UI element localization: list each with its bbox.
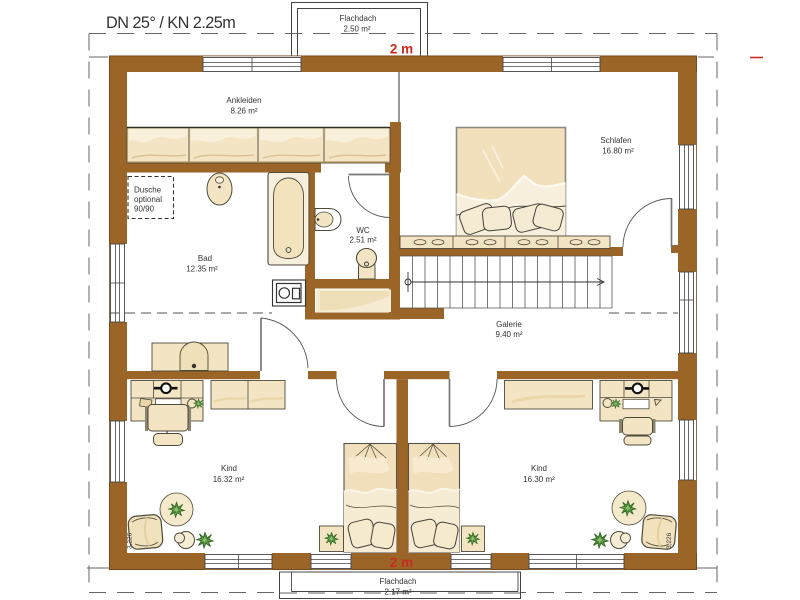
svg-text:16.80 m²: 16.80 m² [602,147,634,156]
svg-text:Kind: Kind [531,464,547,473]
svg-text:3,226: 3,226 [127,532,134,549]
svg-text:90/90: 90/90 [134,205,155,214]
svg-text:12.35 m²: 12.35 m² [186,265,218,274]
svg-text:2 m: 2 m [390,555,413,570]
svg-text:16.30 m²: 16.30 m² [523,475,555,484]
svg-text:8.26 m²: 8.26 m² [230,107,257,116]
svg-text:Bad: Bad [198,254,212,263]
svg-text:2 m: 2 m [390,42,413,57]
svg-text:Flachdach: Flachdach [380,577,417,586]
svg-text:optional: optional [134,195,162,204]
svg-text:2.17 m²: 2.17 m² [384,588,411,597]
svg-text:3,226: 3,226 [666,532,673,549]
svg-text:16.32 m²: 16.32 m² [213,475,245,484]
svg-text:DN 25° / KN 2.25m: DN 25° / KN 2.25m [106,14,235,32]
svg-text:Flachdach: Flachdach [340,14,377,23]
svg-text:Kind: Kind [221,464,237,473]
svg-text:Schlafen: Schlafen [600,136,631,145]
svg-text:9.40 m²: 9.40 m² [495,330,522,339]
svg-text:2.51 m²: 2.51 m² [349,236,376,245]
svg-text:WC: WC [356,226,370,235]
svg-text:Ankleiden: Ankleiden [226,96,261,105]
svg-text:Dusche: Dusche [134,186,162,195]
svg-text:2.50 m²: 2.50 m² [343,25,370,34]
svg-text:Galerie: Galerie [496,320,522,329]
